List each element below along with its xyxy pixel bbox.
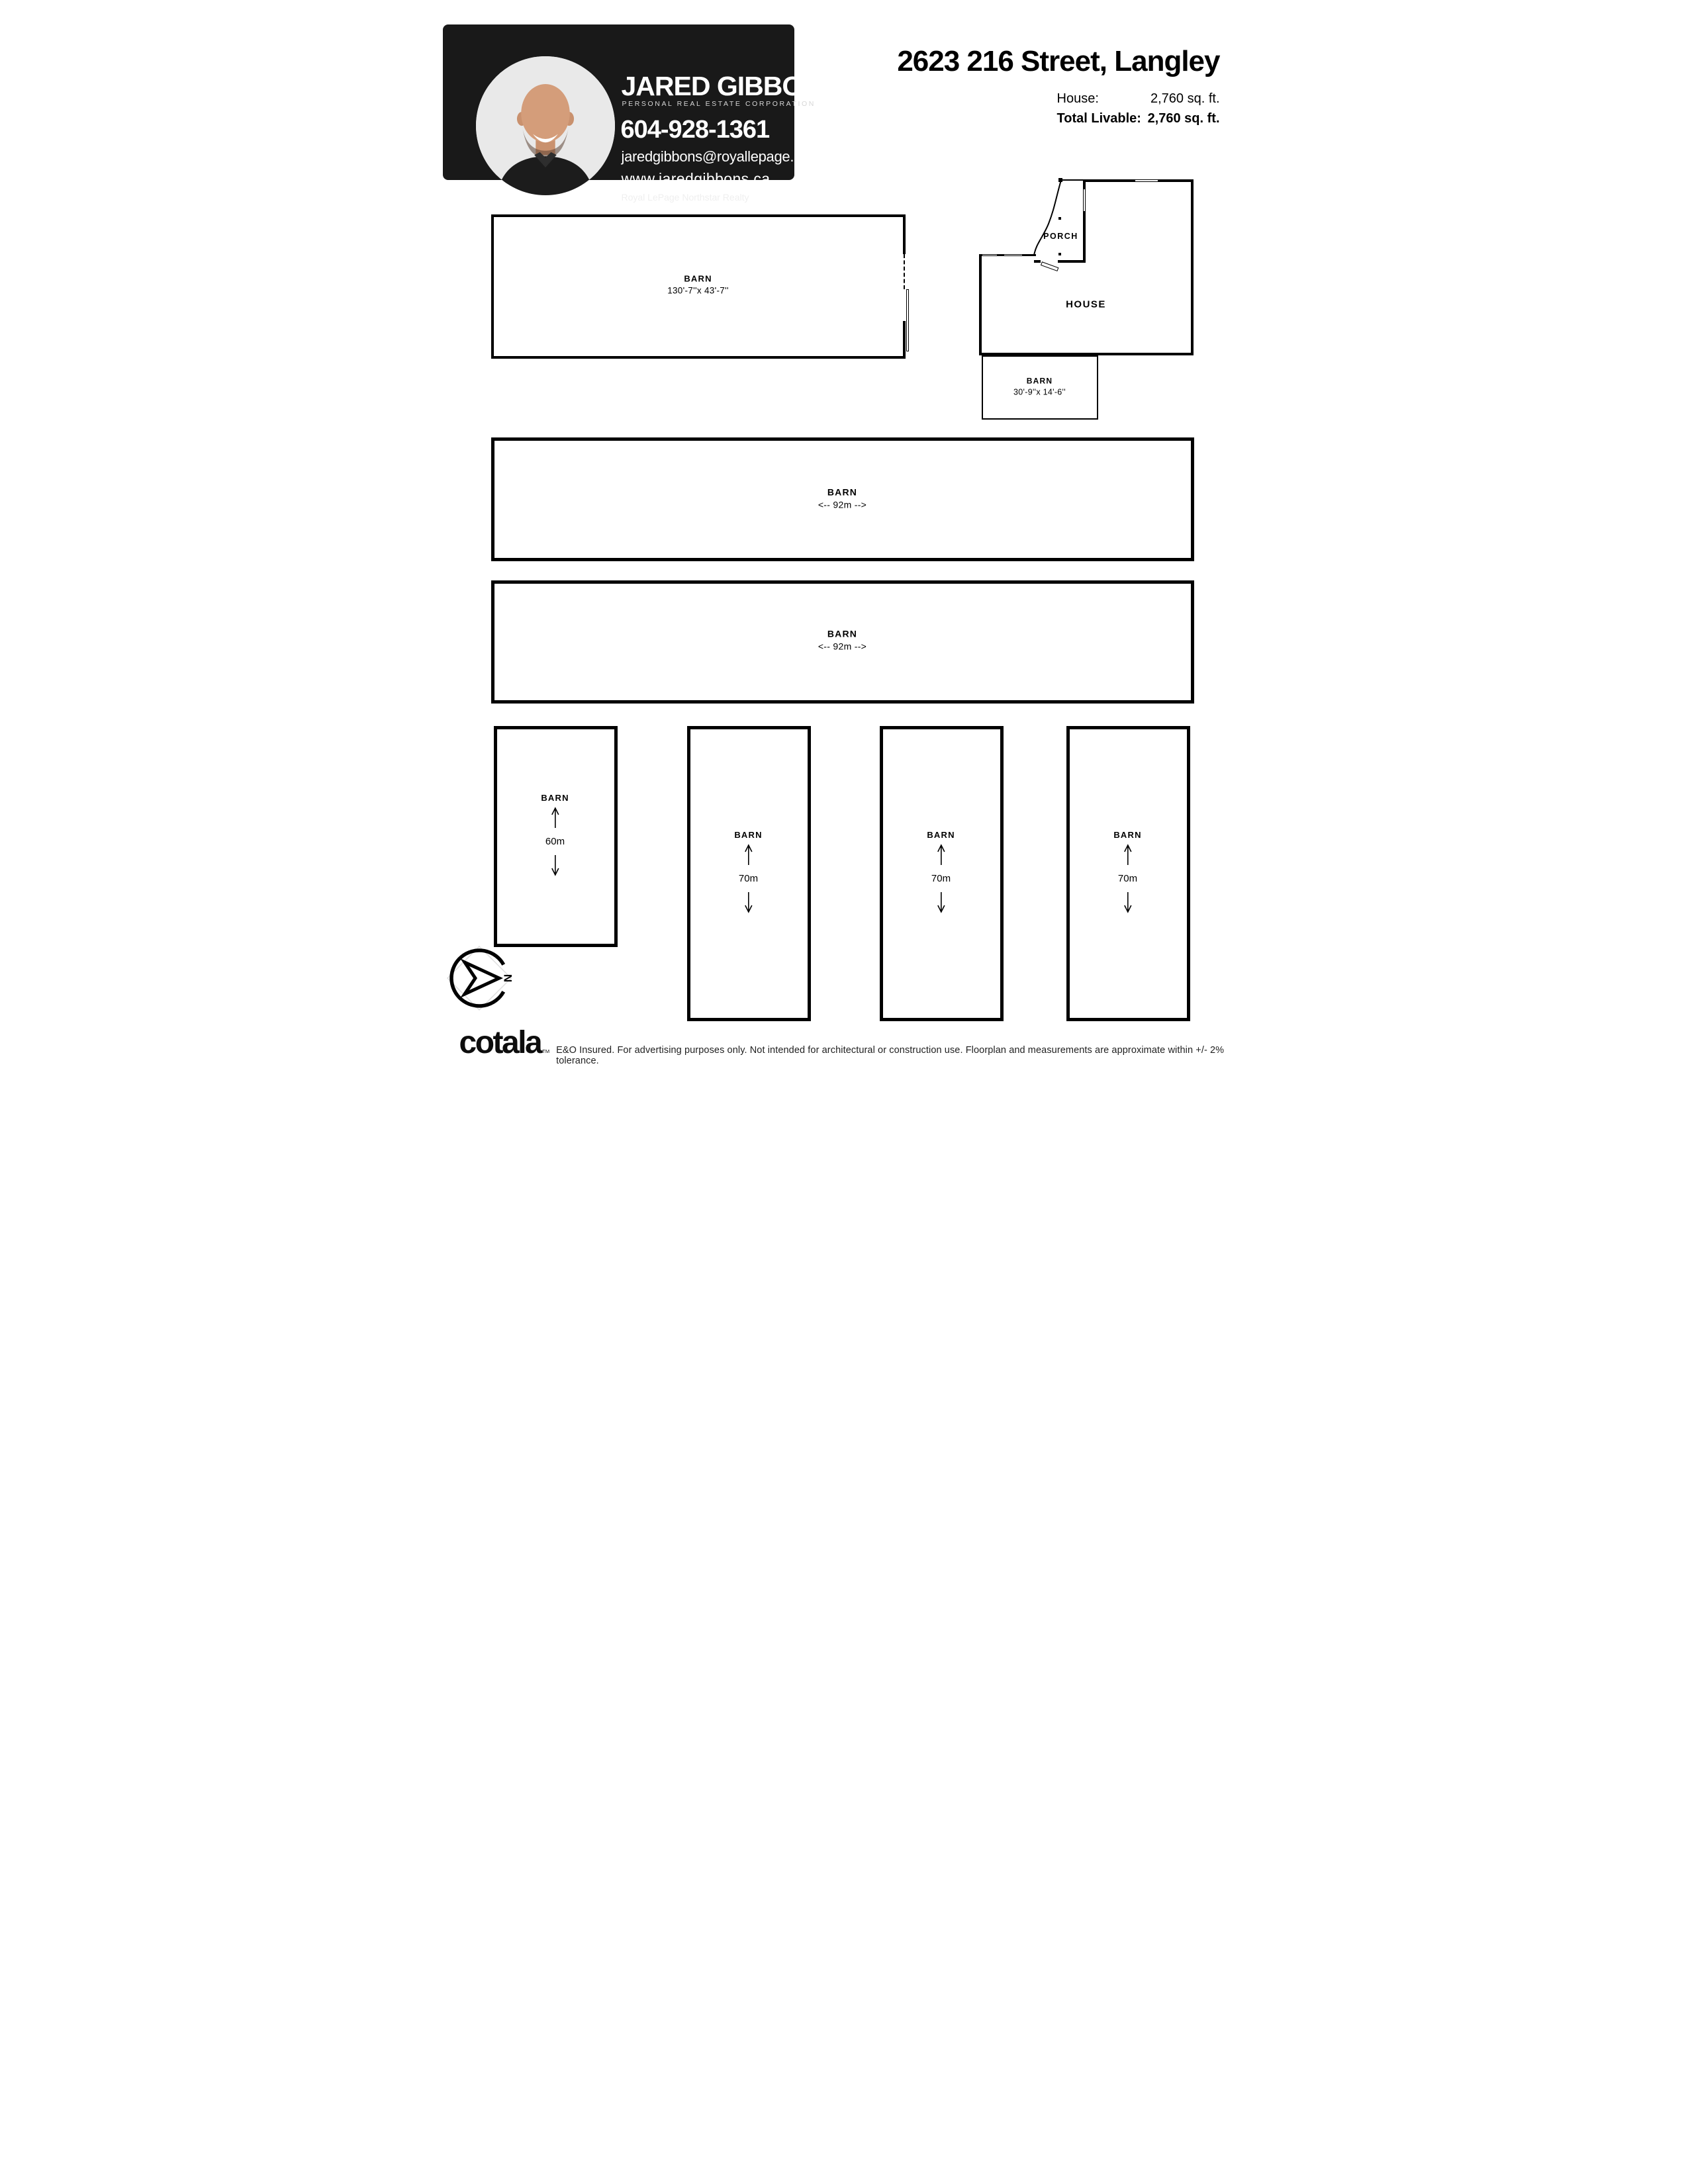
wing-window-2 [1004,254,1022,256]
barn-large-dims: 130'-7''x 43'-7'' [667,286,729,296]
barn-large-name: BARN [667,274,729,284]
trademark-mark: TM [542,1048,549,1054]
arrow-down-icon [1123,891,1132,914]
arrow-down-icon [743,891,753,914]
room-label-house: HOUSE [1066,299,1106,310]
page-title: 2623 216 Street, Langley [897,45,1219,78]
arrow-up-icon [743,843,753,866]
area-stats: House: 2,760 sq. ft. Total Livable: 2,76… [1057,91,1220,131]
agent-name: JARED GIBBONS [622,71,839,102]
room-label-barn-large: BARN 130'-7''x 43'-7'' [667,274,729,296]
arrow-up-icon [1123,843,1132,866]
room-label-barn-60: BARN 60m [541,793,569,880]
house-top-window [1135,179,1158,182]
floorplan-page: JARED GIBBONS PERSONAL REAL ESTATE CORPO… [422,0,1266,1092]
room-label-barn-92b: BARN <-- 92m --> [818,629,867,652]
barn-small-dims: 30'-9''x 14'-6'' [1013,388,1066,397]
room-label-barn-70b: BARN 70m [927,830,955,917]
arrow-down-icon [550,854,559,877]
barn-large-sliding-door [906,289,909,351]
room-label-barn-70c: BARN 70m [1113,830,1141,917]
agent-avatar-icon [476,56,615,195]
agent-website: www.jaredgibbons.ca [622,170,771,188]
barn-92a-dims: <-- 92m --> [818,500,867,510]
room-label-porch: PORCH [1043,232,1078,241]
stat-total-livable: Total Livable: 2,760 sq. ft. [1057,111,1220,126]
porch-door-leaf [1040,261,1058,271]
stat-house-label: House: [1057,91,1099,107]
porch-window [1083,189,1086,211]
footer: cotala TM E&O Insured. For advertising p… [459,1024,1266,1066]
barn-60-length: 60m [545,836,565,847]
stat-house-value: 2,760 sq. ft. [1150,91,1220,107]
barn-92a-name: BARN [818,487,867,498]
barn-70c-length: 70m [1118,873,1137,884]
agent-photo [476,56,615,195]
barn-92b-name: BARN [818,629,867,639]
barn-92b-dims: <-- 92m --> [818,641,867,652]
agent-phone: 604-928-1361 [621,116,770,144]
barn-small-name: BARN [1013,377,1066,386]
agent-subtitle: PERSONAL REAL ESTATE CORPORATION [622,100,816,108]
svg-text:N: N [501,974,512,982]
porch-corner-post [1058,178,1062,182]
compass-icon: N [446,945,512,1011]
porch-post-2 [1058,253,1061,255]
barn-70a-name: BARN [734,830,762,840]
stat-total-value: 2,760 sq. ft. [1148,111,1220,126]
stat-house: House: 2,760 sq. ft. [1057,91,1220,107]
room-label-barn-92a: BARN <-- 92m --> [818,487,867,510]
room-label-barn-small: BARN 30'-9''x 14'-6'' [1013,377,1066,397]
agent-email: jaredgibbons@royallepage.ca [622,148,809,165]
wing-window-1 [982,254,997,256]
barn-large-opening-dashed [904,254,905,289]
arrow-up-icon [936,843,945,866]
barn-60-name: BARN [541,793,569,803]
barn-70c-name: BARN [1113,830,1141,840]
agent-card: JARED GIBBONS PERSONAL REAL ESTATE CORPO… [443,24,794,180]
barn-70b-length: 70m [931,873,951,884]
arrow-up-icon [550,806,559,829]
barn-70a-length: 70m [739,873,758,884]
arrow-down-icon [936,891,945,914]
porch-post-1 [1058,217,1061,220]
disclaimer-text: E&O Insured. For advertising purposes on… [556,1045,1266,1066]
agent-brokerage: Royal LePage Northstar Realty [622,192,749,203]
barn-70b-name: BARN [927,830,955,840]
cotala-logo: cotala [459,1024,541,1061]
room-label-barn-70a: BARN 70m [734,830,762,917]
stat-total-label: Total Livable: [1057,111,1141,126]
